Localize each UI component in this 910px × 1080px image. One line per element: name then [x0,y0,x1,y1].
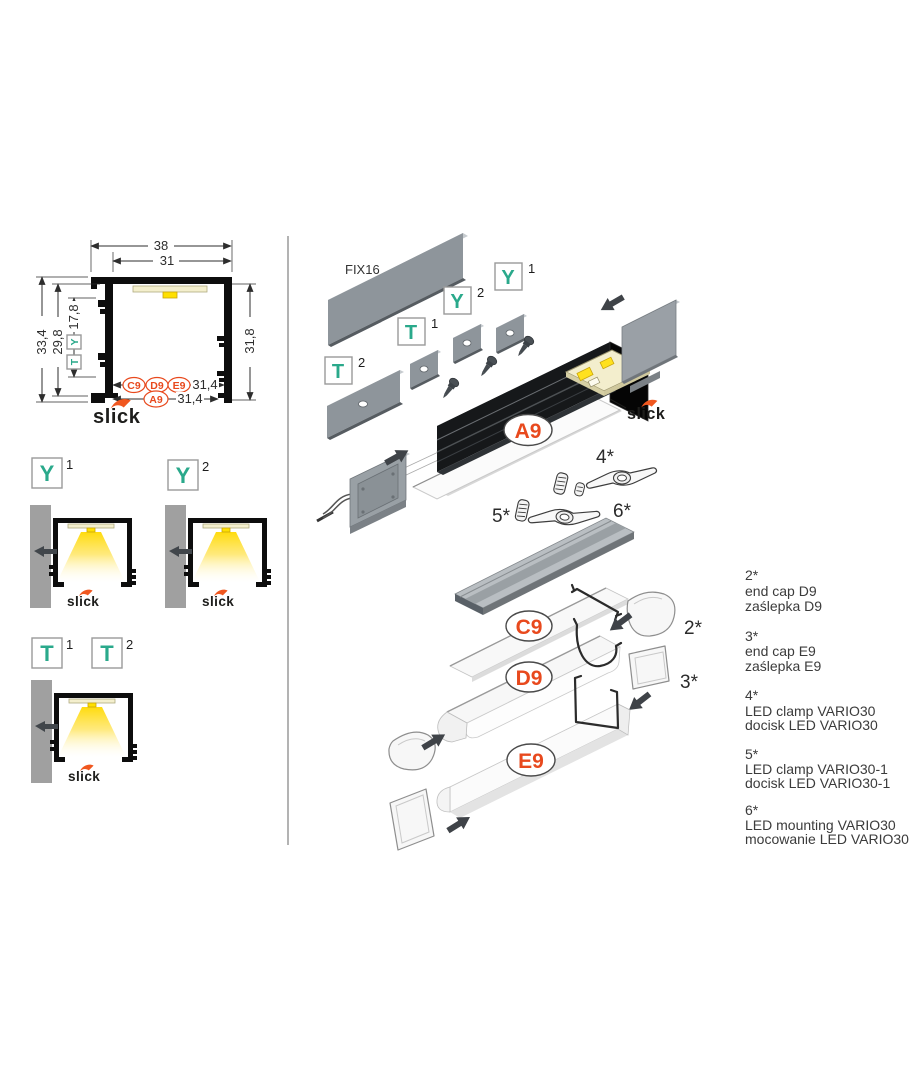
variant-t2-sup: 2 [126,637,133,652]
variant-t1-letter: T [40,641,54,666]
d9-end-cap-left [389,732,435,770]
assembly-arrow-icon [597,291,627,316]
dim-width-inner: 31 [160,253,174,268]
exploded-t1-sup: 1 [431,316,438,331]
drawing-svg: slick [0,0,910,1080]
parts-item-pl: mocowanie LED VARIO30 [745,831,909,847]
parts-item-pl: docisk LED VARIO30 [745,717,878,733]
e9-end-cap-3 [629,646,669,689]
pin-icon [574,482,585,497]
exploded-y2-letter: Y [450,291,464,313]
screw-icon [439,377,460,401]
led-clamp-4 [587,468,657,488]
variant-y1-sup: 1 [66,457,73,472]
variant-y-mini: Y [69,338,81,345]
variant-t1-sup: 1 [66,637,73,652]
variant-y1-letter: Y [40,461,55,486]
technical-drawing-page: slick [0,0,910,1080]
right-end-cap [622,300,680,393]
profile-a9-label: A9 [149,394,163,406]
exploded-c9-label: C9 [516,616,543,639]
callout-3: 3* [680,672,699,693]
variant-y2-sup: 2 [202,459,209,474]
parts-item-num: 3* [745,628,759,644]
exploded-y2-sup: 2 [477,285,484,300]
parts-item-pl: zaślepka D9 [745,598,822,614]
t-mount-diagram [31,680,137,784]
exploded-d9-label: D9 [516,667,543,690]
dim-height-mid: 29,8 [50,329,65,354]
y2-mounting-plate [453,324,484,364]
spring-icon [515,499,530,522]
exploded-t2-letter: T [332,361,344,383]
dim-width-outer: 38 [154,238,168,253]
dim-opening-bottom: 31,4 [177,391,202,406]
variant-y2-section: Y 2 [165,459,271,609]
parts-list: 2* end cap D9 zaślepka D9 3* end cap E9 … [745,567,909,847]
callout-6: 6* [613,501,632,522]
profile-bottom-left-lip [91,393,118,403]
fix16-label: FIX16 [345,262,380,277]
variant-t-mini: T [69,358,81,365]
variant-t-section: T 1 T 2 [31,637,137,784]
slick-logo [93,399,141,428]
spring-icon [553,472,569,495]
parts-item-pl: docisk LED VARIO30-1 [745,775,890,791]
t1-mounting-plate [410,350,441,390]
led-strip [133,286,207,292]
cover-d9-label: D9 [150,380,164,392]
d9-end-cap-2 [627,592,675,636]
callout-4: 4* [596,447,615,468]
exploded-t2-sup: 2 [358,355,365,370]
variant-t2-letter: T [100,641,114,666]
variant-y1-section: Y 1 [30,457,136,609]
parts-item-en: end cap E9 [745,643,816,659]
parts-item-num: 5* [745,746,759,762]
e9-end-cap-left [390,789,434,850]
parts-item-num: 4* [745,687,759,703]
profile-left-wall [105,284,113,393]
dim-opening-top: 31,4 [192,377,217,392]
exploded-e9-label: E9 [518,750,544,773]
exploded-y1-sup: 1 [528,261,535,276]
parts-item-pl: zaślepka E9 [745,658,821,674]
exploded-t1-letter: T [405,322,417,344]
dim-height-inner: 17,8 [66,304,81,329]
callout-5: 5* [492,506,511,527]
parts-item-num: 6* [745,802,759,818]
exploded-y1-letter: Y [501,267,515,289]
left-end-cap [317,452,410,534]
profile-bottom-right-lip [218,393,232,403]
parts-item-num: 2* [745,567,759,583]
cross-section-drawing: 38 31 33,4 29,8 17,8 Y T 31,8 C9 D9 E9 [34,238,257,428]
y2-mount-diagram [165,505,271,609]
callout-2: 2* [684,618,703,639]
cover-c9-label: C9 [127,380,141,392]
variant-y2-letter: Y [176,463,191,488]
exploded-view: FIX16 [317,233,703,850]
parts-item-en: end cap D9 [745,583,817,599]
y1-mount-diagram [30,505,136,609]
dim-height-right: 31,8 [242,328,257,353]
exploded-a9-label: A9 [515,420,542,443]
dim-height-outer: 33,4 [34,329,49,354]
profile-right-wall [224,284,232,393]
screw-icon [477,355,498,379]
led-chip [163,292,177,298]
